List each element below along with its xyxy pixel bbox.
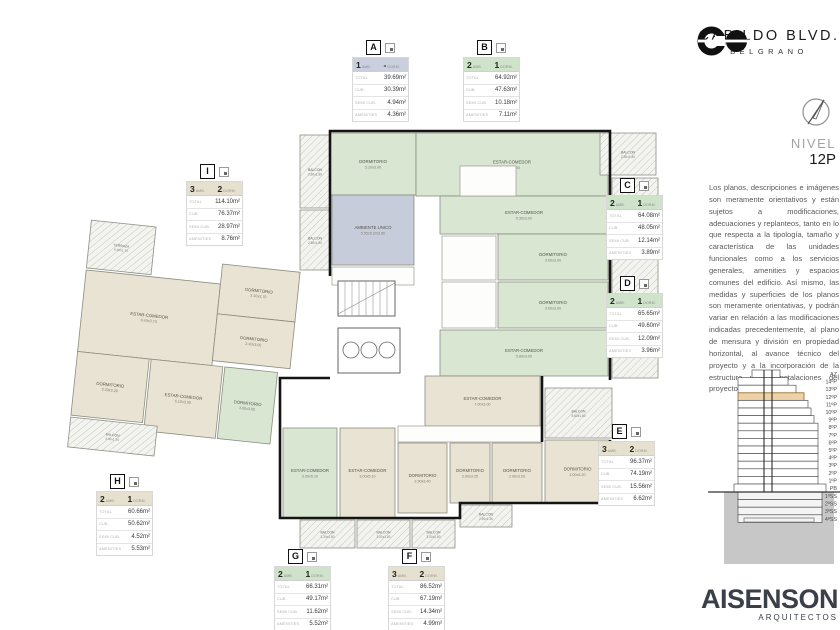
row-value: 96.37m² [630, 459, 652, 465]
row-label: AMENITIES [277, 622, 299, 626]
table-row: CUB. 49.17m² [275, 594, 330, 607]
room-dims: 5.80x3.00 [516, 354, 532, 358]
dorm-label: DORM. [643, 203, 656, 207]
row-label: AMENITIES [609, 251, 631, 255]
level-label: NIVEL [791, 136, 836, 151]
table-row: TOTAL 114.10m² [187, 196, 242, 209]
table-row: CUB. 30.39m² [353, 85, 408, 98]
room-label: AMBIENTE UNICO [354, 225, 392, 230]
dorm-label: DORM. [223, 189, 236, 193]
dorm-count: 1 [638, 198, 643, 208]
badge-row: A [352, 40, 409, 55]
row-label: SEMI CUB. [609, 337, 630, 341]
room-label: DORMITORIO [503, 468, 532, 473]
table-row: TOTAL 65.65m² [607, 308, 662, 321]
row-value: 49.17m² [306, 596, 328, 602]
room-dims: 3.00x5.10 [359, 474, 375, 478]
row-label: CUB. [391, 597, 401, 601]
balcony: BALCON2.80x1.80 [300, 135, 330, 208]
unit-letter-badge: G [288, 549, 303, 564]
row-value: 4.99m² [423, 621, 442, 627]
row-value: 49.60m² [638, 323, 660, 329]
table-row: TOTAL 39.69m² [353, 72, 408, 85]
balcony-dims: 2.80x1.80 [308, 241, 322, 245]
floor-slab-6ºP [738, 438, 818, 446]
row-label: AMENITIES [391, 622, 413, 626]
row-label: AMENITIES [355, 113, 377, 117]
bath-cell [442, 282, 496, 328]
room: DORMITORIO2.90x3.20 [492, 443, 542, 503]
room-label: ESTAR-COMEDOR [464, 396, 502, 401]
dorm-cell: 1DORM. [303, 569, 331, 579]
row-value: 74.19m² [630, 471, 652, 477]
table-header: 2AMB. 1DORM. [97, 492, 152, 506]
floor-slab-4ºP [738, 454, 818, 462]
unit-letter-badge: I [200, 164, 215, 179]
row-label: TOTAL [609, 214, 622, 218]
room: DORMITORIO3.10x3.00 [330, 133, 416, 195]
unit-table-E: E 3AMB. 2DORM. TOTAL 96.37m² CUB. 74.19m… [598, 424, 655, 506]
floor-label: 1ºP [828, 478, 837, 484]
row-label: SEMI CUB. [355, 101, 376, 105]
table-row: CUB. 76.37m² [187, 209, 242, 222]
floor-label: 2ºSS [825, 502, 838, 508]
table-row: SEMI CUB. 12.14m² [607, 235, 662, 248]
room: DORMITORIO3.20x3.20 [71, 351, 149, 422]
room: DORMITORIO2.90x3.40 [398, 443, 447, 513]
row-value: 5.53m² [131, 546, 150, 552]
room-label: ESTAR-COMEDOR [291, 468, 329, 473]
floor-label: 5ºP [828, 448, 837, 454]
amb-label: AMB. [616, 301, 625, 305]
dorm-cell: 1DORM. [492, 60, 520, 70]
balcony-dims: 2.80x1.80 [308, 172, 322, 176]
area-table: 3AMB. 2DORM. TOTAL 96.37m² CUB. 74.19m² … [598, 441, 655, 506]
row-value: 5.52m² [309, 621, 328, 627]
row-label: TOTAL [466, 76, 479, 80]
unit-letter-badge: E [612, 424, 627, 439]
row-value: 10.18m² [495, 100, 517, 106]
keyplan-icon [496, 43, 506, 53]
room-dims: 5.30x3.00 [516, 216, 532, 220]
room: ESTAR-COMEDOR7.00x3.00 [425, 376, 540, 426]
floor-label: PB [830, 486, 838, 492]
row-label: CUB. [466, 88, 476, 92]
north-compass-icon [800, 96, 832, 128]
dorm-label: DORM. [133, 499, 146, 503]
row-value: 12.14m² [638, 238, 660, 244]
balcony-dims: 2.30x1.30 [479, 517, 493, 521]
dorm-count: 1 [128, 494, 133, 504]
room: ESTAR-COMEDOR3.00x5.10 [283, 428, 337, 518]
unit-table-H: H 2AMB. 1DORM. TOTAL 60.66m² CUB. 50.62m… [96, 474, 153, 556]
table-row: SEMI CUB. 28.97m² [187, 221, 242, 234]
balcony: BALCON3.00x1.80 [412, 520, 455, 548]
floor-slab-11ºP [738, 400, 808, 408]
row-label: AMENITIES [609, 349, 631, 353]
balcony: BALCON2.80x1.80 [600, 133, 656, 175]
balcony: BALCON3.00x1.80 [357, 520, 410, 548]
floor-label: 2ºP [828, 471, 837, 477]
dorm-cell: 2DORM. [215, 184, 243, 194]
dorm-count: 2 [630, 444, 635, 454]
row-value: 76.37m² [218, 211, 240, 217]
room: DORMITORIO3.00x3.00 [498, 234, 608, 280]
dorm-count: 1 [495, 60, 500, 70]
floor-label: 8ºP [828, 425, 837, 431]
table-header: 3AMB. 2DORM. [599, 442, 654, 456]
room: DORMITORIO3.10x2.70 [217, 264, 300, 322]
amb-cell: 3AMB. [187, 184, 215, 194]
table-header: 2AMB. 1DORM. [464, 58, 519, 72]
unit-table-C: C 2AMB. 1DORM. TOTAL 64.08m² CUB. 48.05m… [606, 178, 663, 260]
room: DORMITORIO3.00x3.00 [498, 282, 608, 328]
table-row: AMENITIES 4.36m² [353, 110, 408, 122]
floor-slab-13ºP [738, 385, 796, 393]
amb-cell: 2AMB. [464, 60, 492, 70]
floor-label: 9ºP [828, 418, 837, 424]
room-dims: 3.00x3.20 [569, 473, 585, 477]
cb-logo-icon [698, 28, 750, 54]
keyplan-icon [631, 427, 641, 437]
amb-label: AMB. [284, 574, 293, 578]
room-label: ESTAR-COMEDOR [505, 210, 543, 215]
table-row: AMENITIES 6.62m² [599, 494, 654, 506]
keyplan-icon [639, 181, 649, 191]
table-row: CUB. 49.60m² [607, 321, 662, 334]
table-row: AMENITIES 3.89m² [607, 248, 662, 260]
balcony: BALCON3.30x1.80 [300, 520, 355, 548]
row-value: 7.11m² [499, 112, 517, 118]
row-label: SEMI CUB. [609, 239, 630, 243]
floor-label: 14ºP [825, 380, 837, 386]
table-row: CUB. 74.19m² [599, 469, 654, 482]
amb-cell: 2AMB. [275, 569, 303, 579]
floor-slab-14ºP [738, 378, 788, 386]
table-row: AMENITIES 5.53m² [97, 544, 152, 556]
floor-slab-AZ [752, 370, 780, 378]
amb-label: AMB. [398, 574, 407, 578]
plan-sheet: CABILDO BLVD. BELGRANO NIVEL 12P Los pla… [0, 0, 840, 630]
row-label: TOTAL [601, 460, 614, 464]
table-row: SEMI CUB. 11.62m² [275, 606, 330, 619]
row-label: SEMI CUB. [99, 535, 120, 539]
table-row: SEMI CUB. 10.18m² [464, 97, 519, 110]
dorm-label: DORM. [425, 574, 438, 578]
room-label: ESTAR-COMEDOR [505, 348, 543, 353]
dorm-label: DORM. [643, 301, 656, 305]
floor-label: 13ºP [825, 387, 837, 393]
room: ESTAR-COMEDOR5.30x3.00 [440, 196, 608, 234]
unit-letter-badge: C [620, 178, 635, 193]
area-table: 2AMB. 1DORM. TOTAL 65.65m² CUB. 49.60m² … [606, 293, 663, 358]
amb-label: AMB. [616, 203, 625, 207]
floor-slab-2ºSS [738, 500, 822, 508]
balcony-dims: 3.30x1.80 [320, 535, 334, 539]
dorm-count: 2 [420, 569, 425, 579]
floor-label: 12ºP [825, 395, 837, 401]
building-section-diagram: AZ14ºP13ºP12ºP11ºP10ºP9ºP8ºP7ºP6ºP5ºP4ºP… [708, 362, 840, 598]
row-value: 50.62m² [128, 521, 150, 527]
table-row: TOTAL 66.31m² [275, 581, 330, 594]
row-value: 64.92m² [495, 75, 517, 81]
row-label: TOTAL [189, 200, 202, 204]
floor-slab-3ºP [738, 461, 818, 469]
room-dims: 5.55x5.20/3.50 [361, 231, 385, 235]
row-value: 4.94m² [387, 100, 406, 106]
amb-label: AMB. [608, 449, 617, 453]
floor-label: 7ºP [828, 433, 837, 439]
row-value: 8.76m² [221, 236, 240, 242]
row-value: 64.08m² [638, 213, 660, 219]
floor-slab-10ºP [738, 408, 811, 416]
row-label: AMENITIES [189, 237, 211, 241]
balcony-dims: 3.00x1.80 [376, 535, 390, 539]
floor-slab-3ºSS [738, 507, 822, 515]
row-value: 28.97m² [218, 224, 240, 230]
floor-label: 4ºP [828, 456, 837, 462]
floor-slab-7ºP [738, 431, 818, 439]
room-dims: 2.90x3.40 [414, 479, 430, 483]
floor-slab-12ºP [738, 393, 804, 401]
amb-count: 3 [392, 569, 397, 579]
amb-cell: 2AMB. [607, 296, 635, 306]
amb-cell: 3AMB. [389, 569, 417, 579]
architect-logo: AISENSON ARQUITECTOS [701, 586, 838, 622]
row-label: SEMI CUB. [189, 225, 210, 229]
unit-table-G: G 2AMB. 1DORM. TOTAL 66.31m² CUB. 49.17m… [274, 549, 331, 630]
table-header: 1AMB. -DORM. [353, 58, 408, 72]
area-table: 3AMB. 2DORM. TOTAL 86.52m² CUB. 67.19m² … [388, 566, 445, 630]
table-header: 2AMB. 1DORM. [275, 567, 330, 581]
row-label: AMENITIES [99, 547, 121, 551]
amb-label: AMB. [362, 65, 371, 69]
row-value: 15.56m² [630, 484, 652, 490]
table-row: TOTAL 64.08m² [607, 210, 662, 223]
unit-table-A: A 1AMB. -DORM. TOTAL 39.69m² CUB. 30.39m… [352, 40, 409, 122]
row-value: 3.96m² [641, 348, 660, 354]
row-value: 66.31m² [306, 584, 328, 590]
floor-label: AZ [830, 372, 838, 378]
unit-table-I: I 3AMB. 2DORM. TOTAL 114.10m² CUB. 76.37… [186, 164, 243, 246]
row-value: 11.62m² [306, 609, 328, 615]
table-row: AMENITIES 8.76m² [187, 234, 242, 246]
table-row: AMENITIES 5.52m² [275, 619, 330, 630]
dorm-count: 1 [638, 296, 643, 306]
row-label: CUB. [601, 472, 611, 476]
dorm-cell: 1DORM. [635, 198, 663, 208]
bath-cell [442, 236, 496, 280]
room: DORMITORIO2.40x3.00 [212, 314, 294, 369]
balcony: BALCON3.00x1.35 [68, 417, 158, 456]
row-label: SEMI CUB. [391, 610, 412, 614]
dorm-cell: 2DORM. [627, 444, 655, 454]
amb-count: 2 [467, 60, 472, 70]
balcony-dims: 2.80x1.80 [621, 155, 635, 159]
row-label: SEMI CUB. [601, 485, 622, 489]
amb-count: 2 [100, 494, 105, 504]
keyplan-icon [421, 552, 431, 562]
table-row: CUB. 48.05m² [607, 223, 662, 236]
row-value: 30.39m² [384, 87, 406, 93]
table-row: AMENITIES 4.99m² [389, 619, 444, 630]
area-table: 2AMB. 1DORM. TOTAL 64.92m² CUB. 47.63m² … [463, 57, 520, 122]
amb-count: 2 [610, 198, 615, 208]
row-label: CUB. [609, 324, 619, 328]
row-label: TOTAL [355, 76, 368, 80]
floor-slab-PB [734, 484, 826, 492]
room-dims: 2.90x3.25 [462, 474, 478, 478]
amb-label: AMB. [473, 65, 482, 69]
row-value: 114.10m² [215, 199, 240, 205]
dorm-label: DORM. [635, 449, 648, 453]
amb-count: 2 [610, 296, 615, 306]
row-label: CUB. [277, 597, 287, 601]
row-value: 4.52m² [131, 534, 150, 540]
room-dims: 3.00x3.00 [545, 306, 561, 310]
bath-strip [398, 426, 542, 442]
room-label: DORMITORIO [564, 467, 593, 472]
table-row: TOTAL 96.37m² [599, 456, 654, 469]
row-label: CUB. [99, 522, 109, 526]
floor-label: 6ºP [828, 440, 837, 446]
unit-table-F: F 3AMB. 2DORM. TOTAL 86.52m² CUB. 67.19m… [388, 549, 445, 630]
room: DORMITORIO3.00x3.00 [217, 367, 277, 444]
floor-slab-8ºP [738, 423, 818, 431]
row-value: 86.52m² [420, 584, 442, 590]
badge-row: I [186, 164, 243, 179]
badge-row: G [274, 549, 331, 564]
room-label: DORMITORIO [539, 252, 568, 257]
dorm-count: 1 [306, 569, 311, 579]
row-value: 4.36m² [387, 112, 406, 118]
unit-letter-badge: D [620, 276, 635, 291]
dorm-label: DORM. [500, 65, 513, 69]
amb-label: AMB. [106, 499, 115, 503]
table-row: SEMI CUB. 4.52m² [97, 531, 152, 544]
amb-label: AMB. [196, 189, 205, 193]
row-value: 3.89m² [641, 250, 660, 256]
row-value: 65.65m² [638, 311, 660, 317]
floor-slab-9ºP [738, 416, 814, 424]
floor-slab-2ºP [738, 469, 818, 477]
architect-sub: ARQUITECTOS [701, 613, 838, 622]
floor-label: 3ºSS [825, 509, 838, 515]
balcony: BALCON2.30x1.30 [460, 505, 512, 527]
keyplan-icon [129, 477, 139, 487]
room-label: ESTAR-COMEDOR [349, 468, 387, 473]
area-table: 2AMB. 1DORM. TOTAL 64.08m² CUB. 48.05m² … [606, 195, 663, 260]
floor-slab-1ºP [738, 476, 818, 484]
dorm-cell: 2DORM. [417, 569, 445, 579]
row-value: 39.69m² [384, 75, 406, 81]
table-row: CUB. 47.63m² [464, 85, 519, 98]
table-row: SEMI CUB. 14.34m² [389, 606, 444, 619]
amb-count: 3 [190, 184, 195, 194]
level-value: 12P [809, 151, 836, 168]
row-label: TOTAL [391, 585, 404, 589]
row-value: 14.34m² [420, 609, 442, 615]
floor-label: 11ºP [826, 402, 838, 408]
row-label: SEMI CUB. [466, 101, 487, 105]
room-label: DORMITORIO [359, 159, 388, 164]
table-header: 2AMB. 1DORM. [607, 196, 662, 210]
row-label: TOTAL [277, 585, 290, 589]
room: ESTAR-COMEDOR3.00x5.10 [340, 428, 395, 518]
amb-cell: 2AMB. [97, 494, 125, 504]
table-row: AMENITIES 3.96m² [607, 346, 662, 358]
floor-slab-4ºSS [738, 515, 822, 523]
floor-label: 3ºP [828, 463, 837, 469]
room: AMBIENTE UNICO5.55x5.20/3.50 [332, 195, 414, 265]
table-row: TOTAL 60.66m² [97, 506, 152, 519]
row-label: CUB. [355, 88, 365, 92]
area-table: 2AMB. 1DORM. TOTAL 66.31m² CUB. 49.17m² … [274, 566, 331, 630]
row-label: SEMI CUB. [277, 610, 298, 614]
keyplan-icon [385, 43, 395, 53]
dorm-cell: 1DORM. [635, 296, 663, 306]
room: DORMITORIO2.90x3.25 [450, 443, 490, 503]
row-value: 60.66m² [128, 509, 150, 515]
dorm-label: DORM. [387, 65, 400, 69]
room-dims: 7.00x3.00 [474, 402, 490, 406]
balcony: BALCON2.80x1.80 [300, 210, 330, 270]
room-label: DORMITORIO [539, 300, 568, 305]
row-value: 47.63m² [495, 87, 517, 93]
table-header: 3AMB. 2DORM. [389, 567, 444, 581]
room-dims: 3.00x5.10 [302, 474, 318, 478]
room-dims: 3.00x3.00 [545, 258, 561, 262]
room: ESTAR-COMEDOR6.40x3.70 [78, 270, 221, 366]
table-row: TOTAL 64.92m² [464, 72, 519, 85]
table-header: 2AMB. 1DORM. [607, 294, 662, 308]
floor-label: 1ºSS [825, 494, 838, 500]
stairs [338, 281, 395, 316]
balcony-dims: 5.80x1.80 [571, 414, 585, 418]
area-table: 1AMB. -DORM. TOTAL 39.69m² CUB. 30.39m² … [352, 57, 409, 122]
area-table: 3AMB. 2DORM. TOTAL 114.10m² CUB. 76.37m²… [186, 181, 243, 246]
room: ESTAR-COMEDOR5.80x3.00 [440, 330, 608, 376]
elevators [338, 328, 400, 373]
amb-cell: 3AMB. [599, 444, 627, 454]
dorm-cell: -DORM. [381, 60, 409, 70]
room-label: DORMITORIO [409, 473, 438, 478]
keyplan-icon [307, 552, 317, 562]
row-value: 6.62m² [633, 496, 652, 502]
table-row: TOTAL 86.52m² [389, 581, 444, 594]
table-row: CUB. 67.19m² [389, 594, 444, 607]
amb-cell: 2AMB. [607, 198, 635, 208]
badge-row: H [96, 474, 153, 489]
unit-letter-badge: A [366, 40, 381, 55]
row-value: 67.19m² [420, 596, 442, 602]
amb-count: 1 [356, 60, 361, 70]
room-label: ESTAR-COMEDOR [493, 160, 531, 165]
keyplan-icon [219, 167, 229, 177]
row-label: CUB. [609, 226, 619, 230]
balcony-dims: 3.00x1.80 [426, 535, 440, 539]
dorm-cell: 1DORM. [125, 494, 153, 504]
badge-row: B [463, 40, 520, 55]
row-label: AMENITIES [466, 113, 488, 117]
row-value: 12.09m² [638, 336, 660, 342]
area-table: 2AMB. 1DORM. TOTAL 60.66m² CUB. 50.62m² … [96, 491, 153, 556]
dorm-count: 2 [218, 184, 223, 194]
dorm-count: - [384, 60, 387, 70]
brand-block: CABILDO BLVD. BELGRANO [698, 28, 840, 56]
balcony: TERRAZA6.40x1.70 [86, 220, 156, 275]
row-label: TOTAL [609, 312, 622, 316]
